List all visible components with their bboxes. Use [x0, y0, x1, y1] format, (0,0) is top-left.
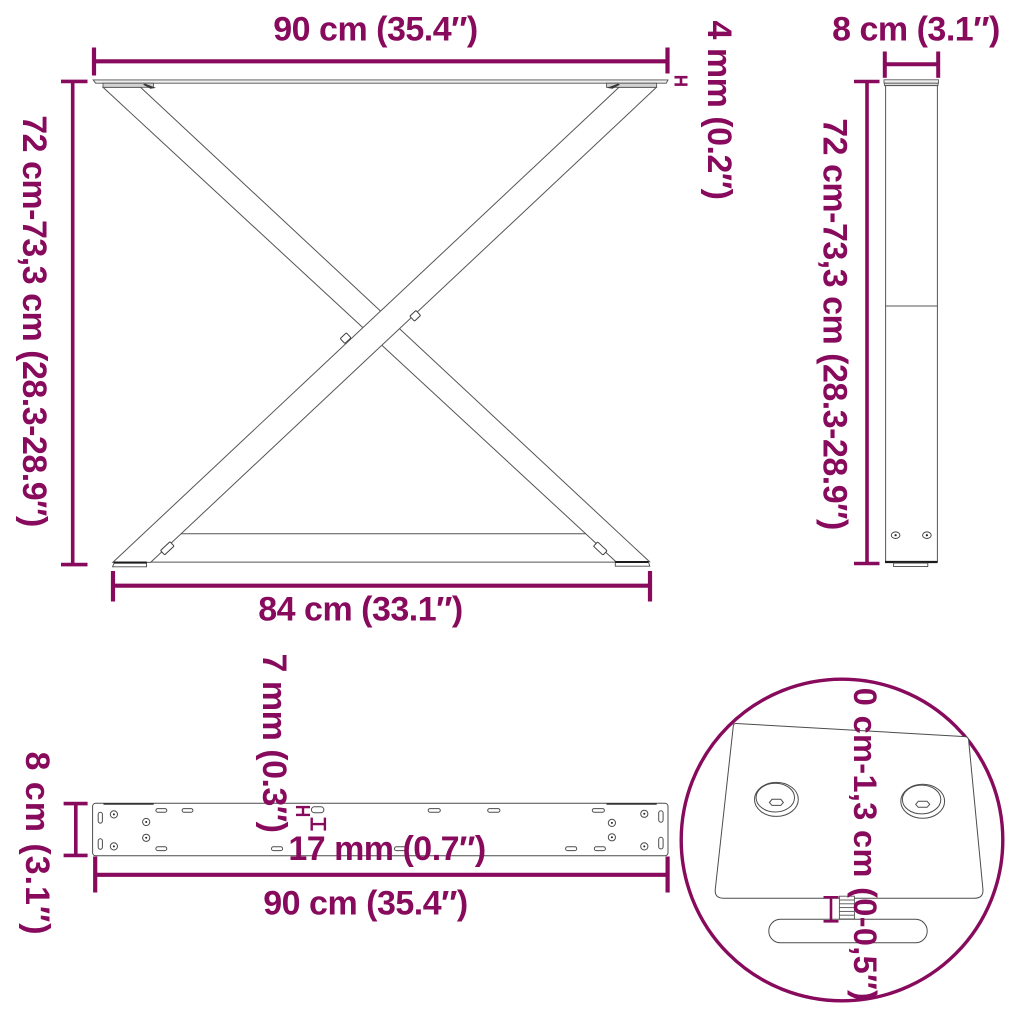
svg-text:8 cm (3.1″): 8 cm (3.1″) [18, 751, 56, 935]
svg-text:4 mm (0.2″): 4 mm (0.2″) [700, 21, 738, 200]
svg-text:8 cm (3.1″): 8 cm (3.1″) [832, 11, 1000, 49]
svg-text:72 cm-73,3 cm (28.3-28.9″): 72 cm-73,3 cm (28.3-28.9″) [15, 115, 53, 527]
svg-text:0 cm-1,3 cm (0-0,5″): 0 cm-1,3 cm (0-0,5″) [847, 688, 883, 1001]
svg-text:17 mm (0.7″): 17 mm (0.7″) [288, 830, 485, 868]
svg-text:90 cm (35.4″): 90 cm (35.4″) [273, 11, 477, 49]
svg-text:72 cm-73,3 cm (28.3-28.9″): 72 cm-73,3 cm (28.3-28.9″) [816, 118, 854, 530]
svg-text:7 mm (0.3″): 7 mm (0.3″) [255, 654, 293, 833]
svg-text:84 cm (33.1″): 84 cm (33.1″) [258, 591, 462, 629]
svg-text:90 cm (35.4″): 90 cm (35.4″) [263, 885, 467, 923]
